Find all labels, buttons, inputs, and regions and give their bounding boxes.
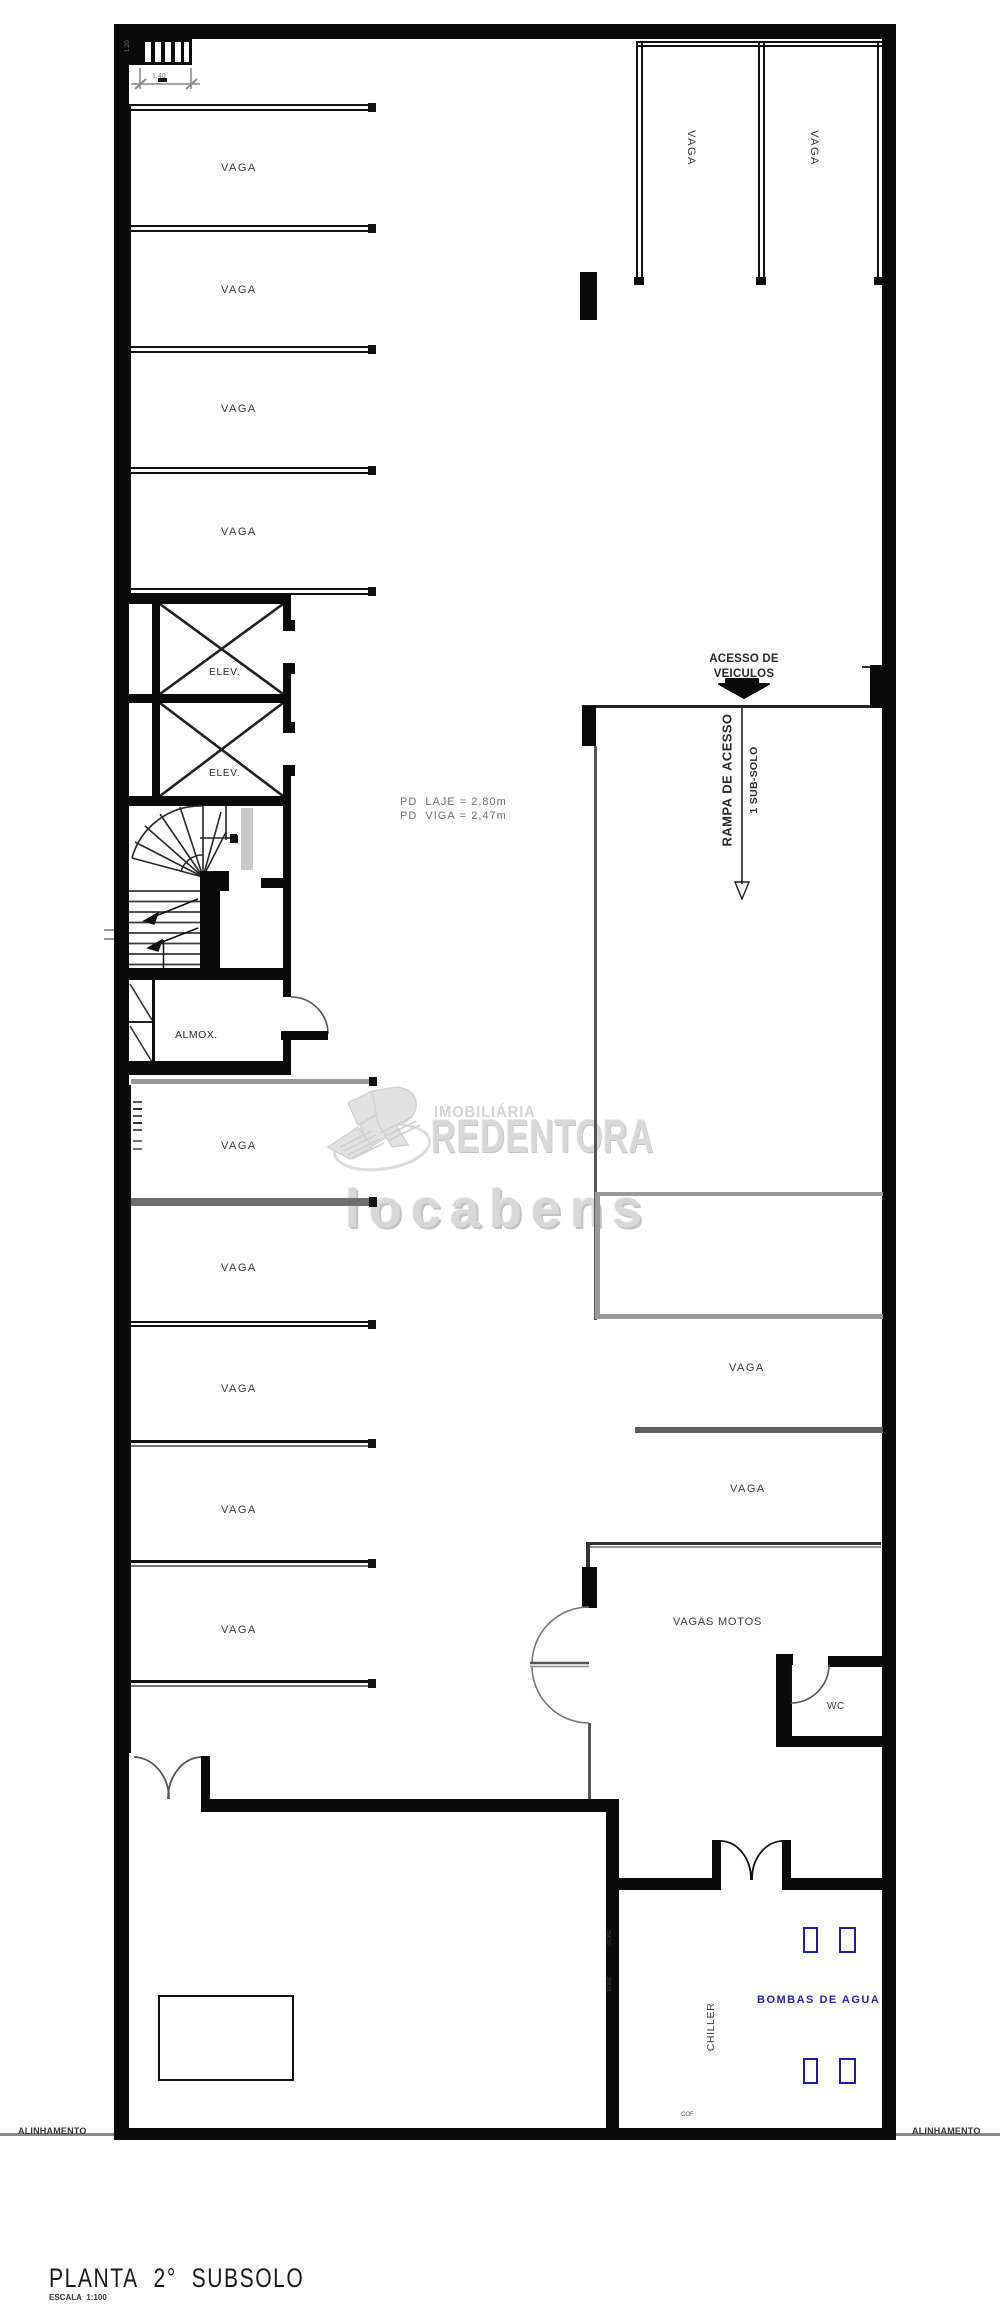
svg-text:1.40: 1.40 <box>152 73 166 80</box>
